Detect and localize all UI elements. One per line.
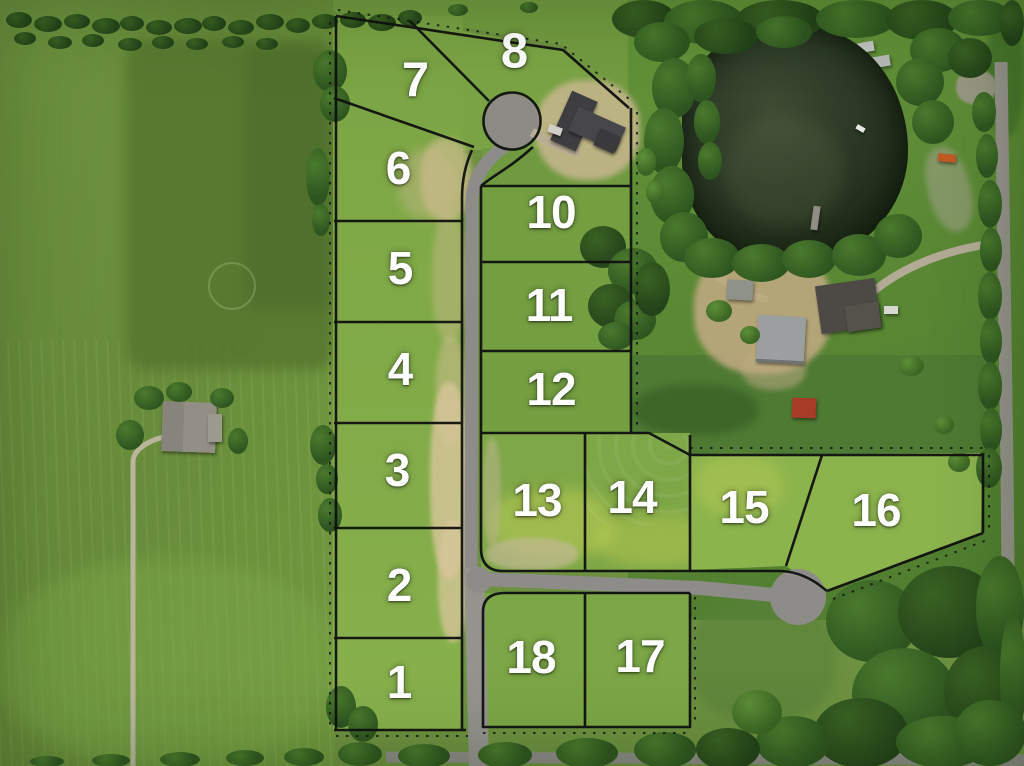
- lot-label-5: 5: [388, 245, 413, 291]
- lot-label-13: 13: [512, 477, 561, 523]
- lot-label-3: 3: [385, 447, 410, 493]
- lot-label-2: 2: [387, 562, 412, 608]
- lot-label-16: 16: [851, 487, 900, 533]
- aerial-plat-photo: 1 2 3 4 5 6 7 8 10 11 12 13 14 15 16 17 …: [0, 0, 1024, 766]
- lot-label-12: 12: [526, 366, 575, 412]
- lot-label-1: 1: [387, 659, 412, 705]
- lot-label-15: 15: [719, 484, 768, 530]
- lot-label-8: 8: [501, 28, 527, 77]
- lot-label-4: 4: [388, 346, 413, 392]
- lot-label-7: 7: [402, 57, 428, 106]
- lot-label-18: 18: [506, 634, 555, 680]
- lot-label-17: 17: [615, 633, 664, 679]
- lot-label-14: 14: [607, 474, 656, 520]
- lot-label-10: 10: [526, 189, 575, 235]
- lot-labels-layer: 1 2 3 4 5 6 7 8 10 11 12 13 14 15 16 17 …: [0, 0, 1024, 766]
- lot-label-11: 11: [526, 282, 573, 328]
- lot-label-6: 6: [386, 145, 411, 191]
